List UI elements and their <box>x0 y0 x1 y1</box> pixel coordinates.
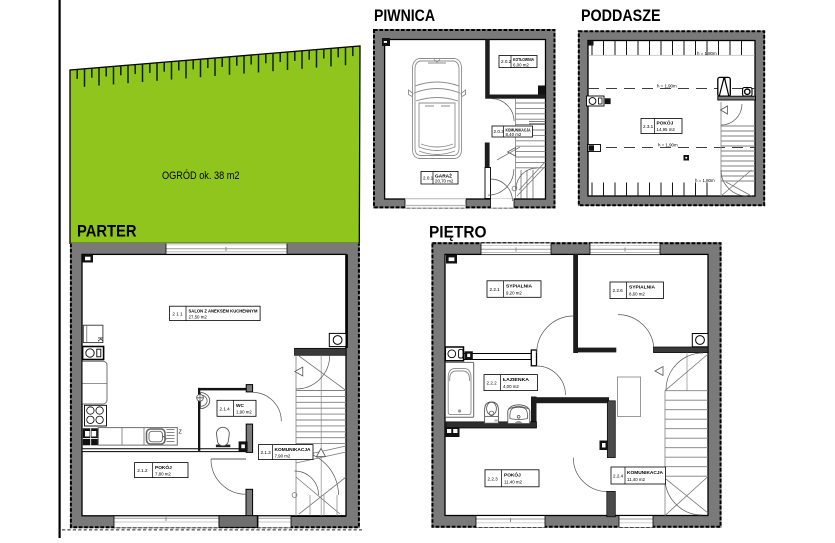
svg-text:h = 1,90m: h = 1,90m <box>657 84 677 89</box>
svg-text:2.1.4: 2.1.4 <box>220 406 231 411</box>
svg-text:9,20 m2: 9,20 m2 <box>506 290 522 295</box>
svg-text:2.1.2: 2.1.2 <box>137 468 148 473</box>
svg-text:7,80 m2: 7,80 m2 <box>155 471 171 476</box>
svg-text:11,40 m2: 11,40 m2 <box>504 480 523 485</box>
svg-text:2.2.3: 2.2.3 <box>488 476 499 481</box>
svg-text:4,00 m2: 4,00 m2 <box>503 384 519 389</box>
svg-text:WC: WC <box>236 403 245 409</box>
svg-text:SALON Z ANEKSEM KUCHENNYM: SALON Z ANEKSEM KUCHENNYM <box>189 308 258 314</box>
svg-text:1,90 m2: 1,90 m2 <box>236 410 252 415</box>
svg-text:2.2.4: 2.2.4 <box>613 474 624 479</box>
svg-text:2.1.3: 2.1.3 <box>261 450 272 455</box>
svg-text:6,00 m2: 6,00 m2 <box>513 62 529 67</box>
svg-text:7,90 m2: 7,90 m2 <box>275 453 291 458</box>
svg-text:14,95 m2: 14,95 m2 <box>657 127 676 132</box>
svg-text:PODDASZE: PODDASZE <box>581 6 661 25</box>
svg-text:SYPIALNIA: SYPIALNIA <box>629 285 656 291</box>
svg-text:2 1 1: 2 1 1 <box>172 311 183 316</box>
svg-text:KOMUNIKACJA: KOMUNIKACJA <box>627 470 664 476</box>
svg-text:2.0.2: 2.0.2 <box>501 59 512 64</box>
svg-text:KOMUNIKACJA: KOMUNIKACJA <box>275 447 312 453</box>
svg-text:2.2.2: 2.2.2 <box>487 381 498 386</box>
svg-text:h = 1,90m: h = 1,90m <box>658 143 678 148</box>
svg-text:2.2.1: 2.2.1 <box>490 287 501 292</box>
svg-text:h = 1,80m: h = 1,80m <box>697 51 717 56</box>
svg-text:2.3.1: 2.3.1 <box>643 124 654 129</box>
svg-text:PIWNICA: PIWNICA <box>374 6 435 25</box>
svg-text:SYPIALNIA: SYPIALNIA <box>506 284 533 290</box>
svg-text:8,60 m2: 8,60 m2 <box>629 292 645 297</box>
svg-text:PIĘTRO: PIĘTRO <box>429 223 487 242</box>
svg-text:20,70 m2: 20,70 m2 <box>435 179 454 184</box>
svg-text:ŁAZIENKA: ŁAZIENKA <box>503 377 530 383</box>
svg-text:K: K <box>96 337 103 342</box>
svg-text:11,40 m2: 11,40 m2 <box>627 477 646 482</box>
svg-text:PARTER: PARTER <box>77 222 137 241</box>
svg-text:2.2.6: 2.2.6 <box>613 288 624 293</box>
svg-text:2.0.3: 2.0.3 <box>494 129 505 134</box>
svg-text:27,50 m2: 27,50 m2 <box>189 315 208 320</box>
svg-text:OGRÓD ok. 38 m2: OGRÓD ok. 38 m2 <box>162 169 240 182</box>
svg-text:8,40 m2: 8,40 m2 <box>506 132 522 137</box>
svg-text:h = 1,80m: h = 1,80m <box>695 178 715 183</box>
svg-text:2.0.1: 2.0.1 <box>423 176 434 181</box>
